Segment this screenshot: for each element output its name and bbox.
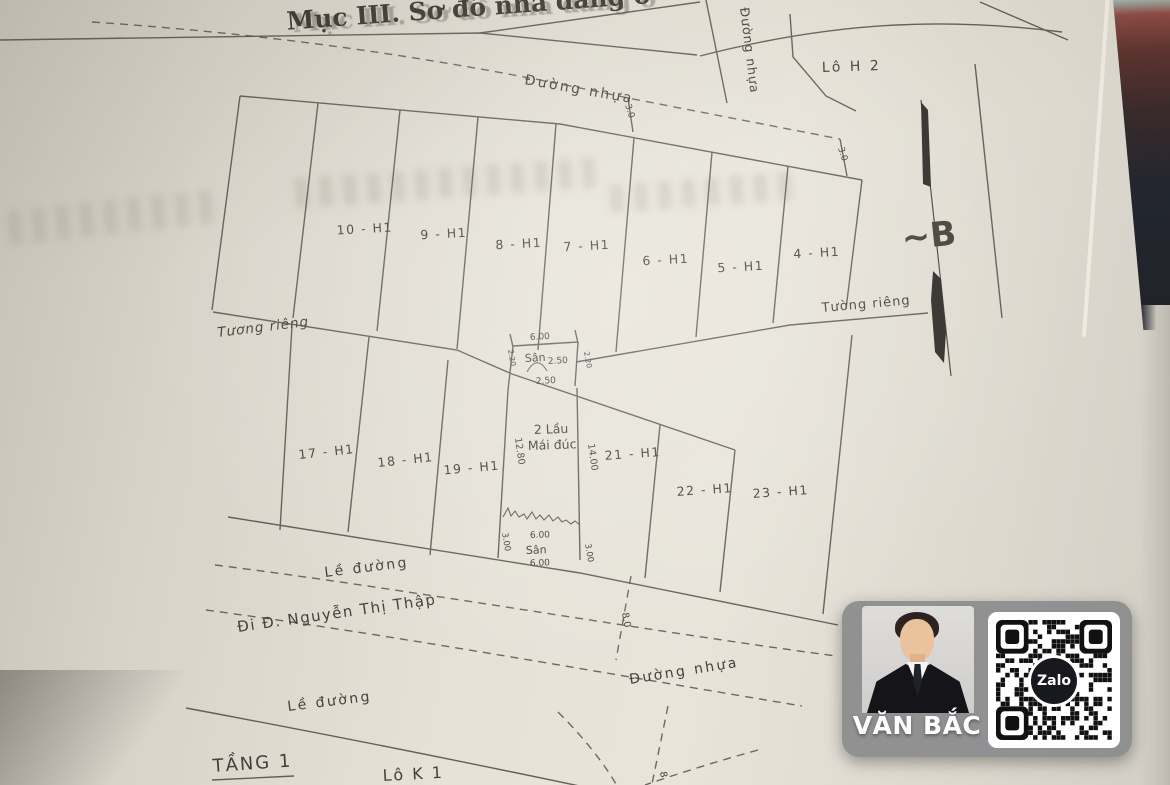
- lot-label: 17 - H1: [298, 441, 355, 462]
- svg-text:2.20: 2.20: [506, 349, 518, 367]
- svg-text:2.20: 2.20: [582, 351, 594, 369]
- svg-text:2.50: 2.50: [548, 356, 569, 367]
- svg-text:3.00: 3.00: [582, 543, 595, 563]
- lot-label: 21 - H1: [604, 444, 661, 463]
- watermark-card: VĂN BẮC Zalo: [842, 601, 1132, 757]
- wall-label-right: Tường riêng: [820, 293, 911, 316]
- lot-label: 7 - H1: [563, 237, 610, 254]
- lot-label: 6 - H1: [642, 251, 689, 268]
- road-label-side: Đường nhựa: [737, 7, 762, 95]
- svg-text:12.80: 12.80: [512, 437, 527, 465]
- wall-label-left: Tương riêng: [217, 314, 310, 341]
- yard-bottom-label: Sân: [526, 543, 547, 557]
- lot-label: 10 - H1: [336, 220, 393, 238]
- curb-label-bottom: Lề đường: [286, 688, 372, 715]
- curb-label-top: Lề đường: [323, 554, 409, 581]
- paper-right-edge: [1140, 305, 1170, 785]
- lot-label: 23 - H1: [752, 482, 809, 501]
- svg-text:8: 8: [657, 771, 669, 779]
- svg-text:2.50: 2.50: [536, 376, 557, 387]
- road-label-bottom: Đường nhựa: [628, 655, 740, 688]
- lot-label: 4 - H1: [793, 244, 840, 261]
- svg-text:3.0: 3.0: [622, 103, 636, 120]
- lot-label: 18 - H1: [377, 449, 434, 470]
- svg-text:8.0: 8.0: [619, 612, 632, 629]
- lot-label: 22 - H1: [676, 480, 733, 499]
- lot-label: 8 - H1: [495, 235, 542, 252]
- area-label-lo-h2: Lô H 2: [822, 58, 882, 76]
- area-label-lo-k1: Lô K 1: [382, 763, 444, 785]
- lot-label: 5 - H1: [717, 258, 764, 275]
- svg-text:14.00: 14.00: [585, 443, 600, 471]
- agent-name: VĂN BẮC: [846, 711, 988, 740]
- house-floors: 2 Lầu: [534, 421, 569, 437]
- lot-label: 9 - H1: [420, 225, 467, 242]
- scanned-site-plan-photo: Mục III. Sơ đồ nhà đang ở Mục III. Sơ đồ…: [0, 0, 1170, 785]
- svg-text:3.00: 3.00: [499, 532, 512, 552]
- svg-text:6.00: 6.00: [530, 558, 551, 569]
- svg-text:3.0: 3.0: [835, 146, 849, 163]
- house-roof: Mái đúc: [528, 436, 577, 453]
- agent-photo: [862, 606, 974, 713]
- yard-top-label: Sân: [524, 351, 545, 365]
- north-arrow: ~B: [900, 100, 958, 376]
- corner-shadow: [0, 670, 230, 785]
- zalo-logo: Zalo: [1031, 658, 1077, 704]
- zalo-logo-text: Zalo: [1037, 673, 1071, 689]
- north-label: ~B: [900, 213, 958, 258]
- svg-text:6.00: 6.00: [530, 332, 551, 343]
- road-label-top: Đường nhựa: [523, 72, 635, 107]
- svg-text:6.00: 6.00: [530, 530, 551, 541]
- zalo-qr-code: Zalo: [988, 612, 1120, 748]
- lot-labels: 10 - H19 - H18 - H17 - H16 - H15 - H14 -…: [298, 220, 841, 501]
- lot-label: 19 - H1: [443, 458, 500, 478]
